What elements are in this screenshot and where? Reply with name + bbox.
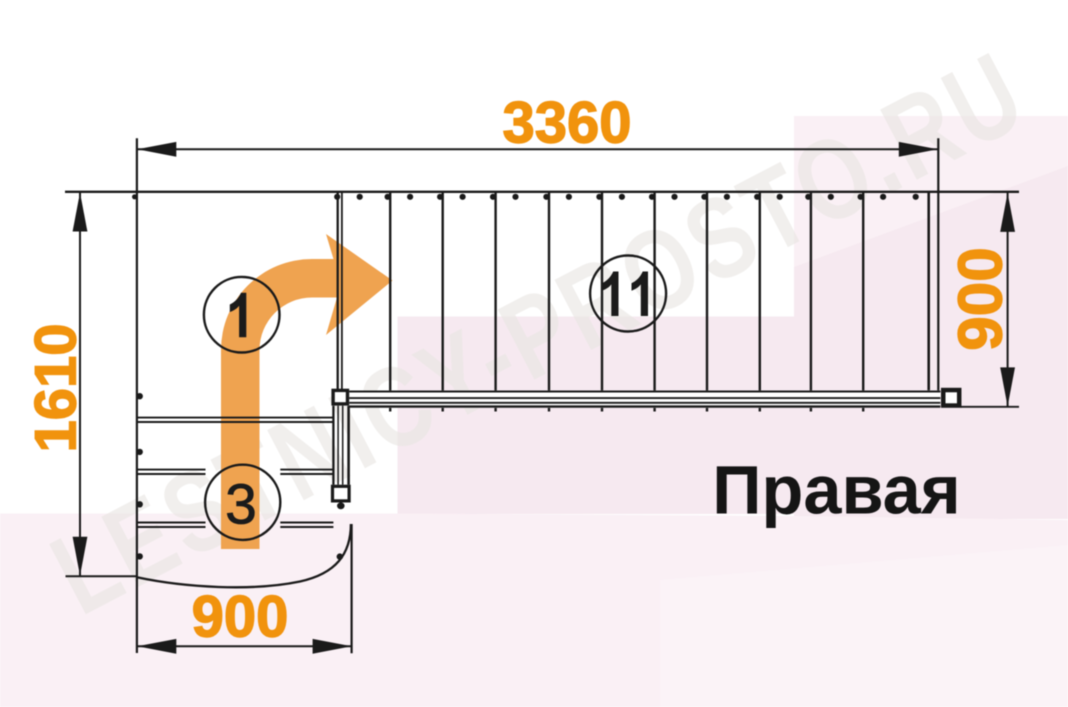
svg-text:3360: 3360 bbox=[502, 91, 631, 156]
svg-text:900: 900 bbox=[946, 247, 1015, 350]
svg-text:3: 3 bbox=[225, 472, 257, 536]
svg-text:1610: 1610 bbox=[23, 323, 88, 452]
svg-text:900: 900 bbox=[192, 585, 289, 650]
svg-text:Правая: Правая bbox=[712, 452, 960, 529]
